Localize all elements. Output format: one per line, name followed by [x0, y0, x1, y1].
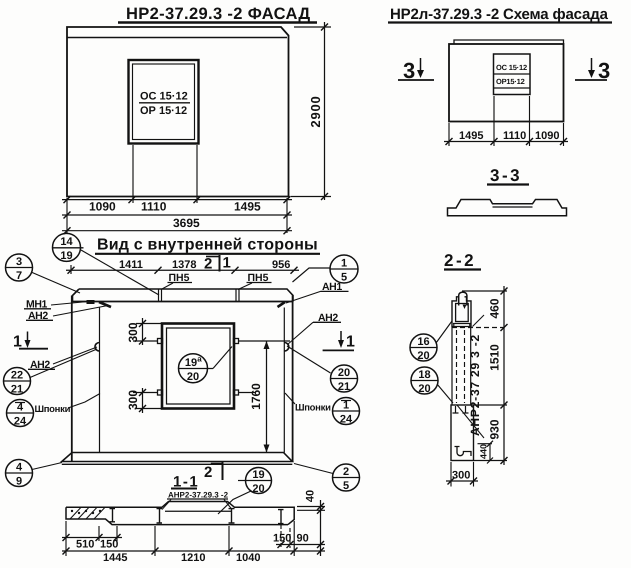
- svg-text:НР2-37.29.3 -2 ФАСАД: НР2-37.29.3 -2 ФАСАД: [126, 5, 310, 23]
- svg-text:20: 20: [252, 483, 264, 495]
- svg-text:1: 1: [341, 258, 347, 270]
- svg-text:АНР2-37.29.3 -2: АНР2-37.29.3 -2: [168, 491, 229, 500]
- svg-text:ОР 15·12: ОР 15·12: [140, 105, 187, 117]
- svg-text:1411: 1411: [119, 259, 143, 271]
- svg-text:20: 20: [417, 350, 429, 362]
- svg-text:1495: 1495: [234, 200, 261, 214]
- svg-text:1: 1: [223, 255, 231, 272]
- svg-text:19: 19: [252, 469, 264, 481]
- svg-text:2: 2: [343, 466, 349, 478]
- svg-text:460: 460: [488, 298, 502, 318]
- svg-text:1040: 1040: [236, 552, 260, 564]
- svg-text:3695: 3695: [173, 216, 200, 230]
- svg-text:ОР15·12: ОР15·12: [496, 77, 525, 86]
- svg-text:20: 20: [338, 367, 350, 379]
- svg-text:1760: 1760: [249, 383, 263, 410]
- svg-text:НР2л-37.29.3 -2 Схема фасада: НР2л-37.29.3 -2 Схема фасада: [390, 6, 609, 23]
- svg-text:3: 3: [16, 256, 22, 268]
- svg-text:7: 7: [16, 270, 22, 282]
- svg-text:20: 20: [187, 371, 199, 383]
- svg-text:18: 18: [418, 369, 430, 381]
- svg-text:14: 14: [60, 236, 73, 248]
- svg-text:300: 300: [126, 390, 140, 410]
- svg-text:а: а: [197, 355, 202, 364]
- svg-text:16: 16: [417, 336, 429, 348]
- svg-text:440: 440: [479, 444, 489, 459]
- svg-text:2-2: 2-2: [444, 251, 476, 270]
- svg-text:300: 300: [452, 470, 470, 482]
- svg-text:956: 956: [272, 259, 290, 271]
- svg-text:22: 22: [11, 370, 23, 382]
- svg-text:Вид с внутренней стороны: Вид с внутренней стороны: [97, 237, 318, 254]
- svg-text:2900: 2900: [308, 95, 323, 127]
- svg-text:20: 20: [418, 383, 430, 395]
- svg-text:1510: 1510: [488, 344, 502, 371]
- svg-text:1110: 1110: [141, 200, 167, 214]
- svg-text:1090: 1090: [535, 130, 559, 142]
- svg-text:930: 930: [488, 419, 502, 439]
- svg-text:5: 5: [341, 272, 347, 284]
- svg-text:19: 19: [60, 250, 72, 262]
- svg-text:21: 21: [338, 381, 350, 393]
- svg-text:24: 24: [14, 416, 27, 428]
- svg-text:ОС 15·12: ОС 15·12: [496, 63, 527, 72]
- svg-text:1378: 1378: [172, 259, 196, 271]
- svg-text:510: 510: [76, 539, 94, 551]
- svg-text:4: 4: [16, 462, 23, 474]
- svg-text:300: 300: [126, 322, 140, 342]
- svg-text:21: 21: [11, 384, 23, 396]
- svg-text:5: 5: [343, 480, 349, 492]
- svg-text:2: 2: [204, 464, 212, 481]
- svg-text:1: 1: [343, 400, 349, 412]
- svg-text:1210: 1210: [181, 552, 205, 564]
- svg-text:19: 19: [185, 357, 197, 369]
- svg-text:1: 1: [346, 334, 355, 351]
- svg-text:2: 2: [204, 256, 212, 273]
- svg-text:90: 90: [297, 533, 309, 545]
- svg-text:9: 9: [16, 476, 22, 488]
- svg-text:1495: 1495: [459, 130, 483, 142]
- svg-text:1445: 1445: [103, 552, 127, 564]
- svg-text:150: 150: [273, 533, 291, 545]
- svg-text:Шпонки: Шпонки: [295, 403, 331, 414]
- svg-text:3-3: 3-3: [490, 166, 522, 185]
- svg-text:3: 3: [598, 58, 610, 83]
- svg-text:4: 4: [17, 402, 24, 414]
- svg-text:Шпонки: Шпонки: [35, 404, 71, 415]
- svg-text:40: 40: [305, 490, 317, 502]
- svg-text:1110: 1110: [503, 130, 526, 142]
- svg-text:150: 150: [100, 539, 118, 551]
- svg-text:1090: 1090: [89, 200, 116, 214]
- svg-text:24: 24: [340, 414, 353, 426]
- svg-text:ОС 15·12: ОС 15·12: [140, 91, 188, 103]
